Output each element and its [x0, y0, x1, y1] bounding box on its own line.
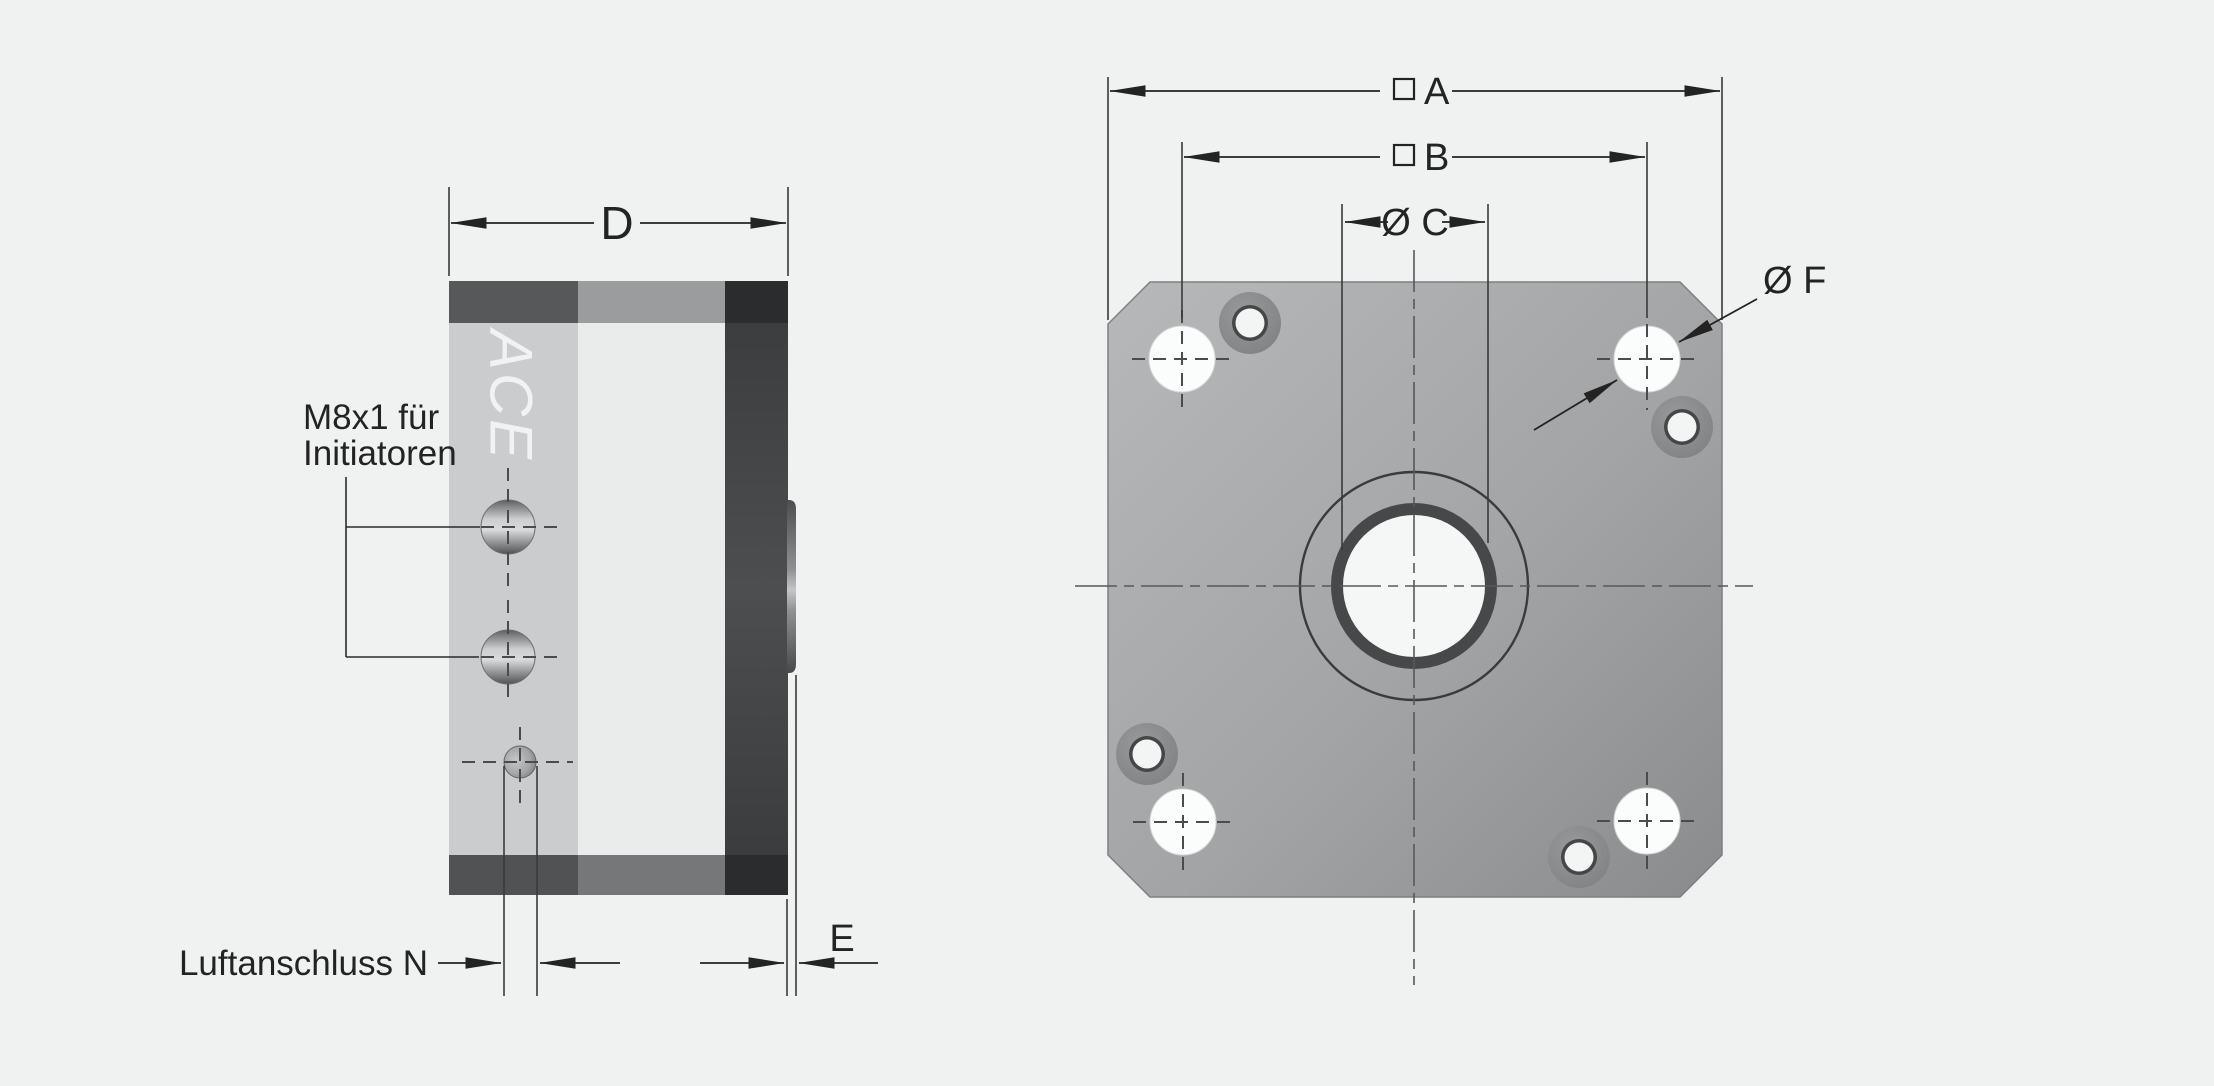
drawing-svg: ACE M8x1 für Initiatoren: [0, 0, 2214, 1086]
block-top-cap-mid: [578, 281, 725, 323]
air-note-label: Luftanschluss N: [179, 944, 428, 983]
block-bottom-cap-mid: [578, 855, 725, 895]
dim-b-label: B: [1424, 137, 1449, 179]
counterbore-top-right: [1651, 396, 1713, 458]
block-top-cap-left: [449, 281, 578, 323]
dim-a-label: A: [1424, 71, 1450, 113]
ace-logo: ACE: [478, 327, 545, 462]
counterbore-bottom-right: [1548, 826, 1610, 888]
block-bottom-cap-left: [449, 855, 578, 895]
block-strip-mid: [578, 323, 725, 855]
technical-drawing-canvas: ACE M8x1 für Initiatoren: [0, 0, 2214, 1086]
dim-c-label: Ø C: [1381, 202, 1449, 244]
dim-e-label: E: [829, 918, 854, 960]
clamp-pad-sliver: [787, 500, 796, 673]
dim-f-label: Ø F: [1763, 260, 1826, 302]
drawing-background: [0, 0, 2214, 1086]
dim-d-label: D: [600, 197, 633, 249]
sensor-note-line2: Initiatoren: [303, 434, 457, 473]
sensor-note-line1: M8x1 für: [303, 398, 439, 437]
block-strip-right: [725, 323, 788, 855]
counterbore-top-left: [1219, 292, 1281, 354]
block-bottom-cap-right: [725, 855, 788, 895]
counterbore-bottom-left: [1116, 723, 1178, 785]
block-top-cap-right: [725, 281, 788, 323]
